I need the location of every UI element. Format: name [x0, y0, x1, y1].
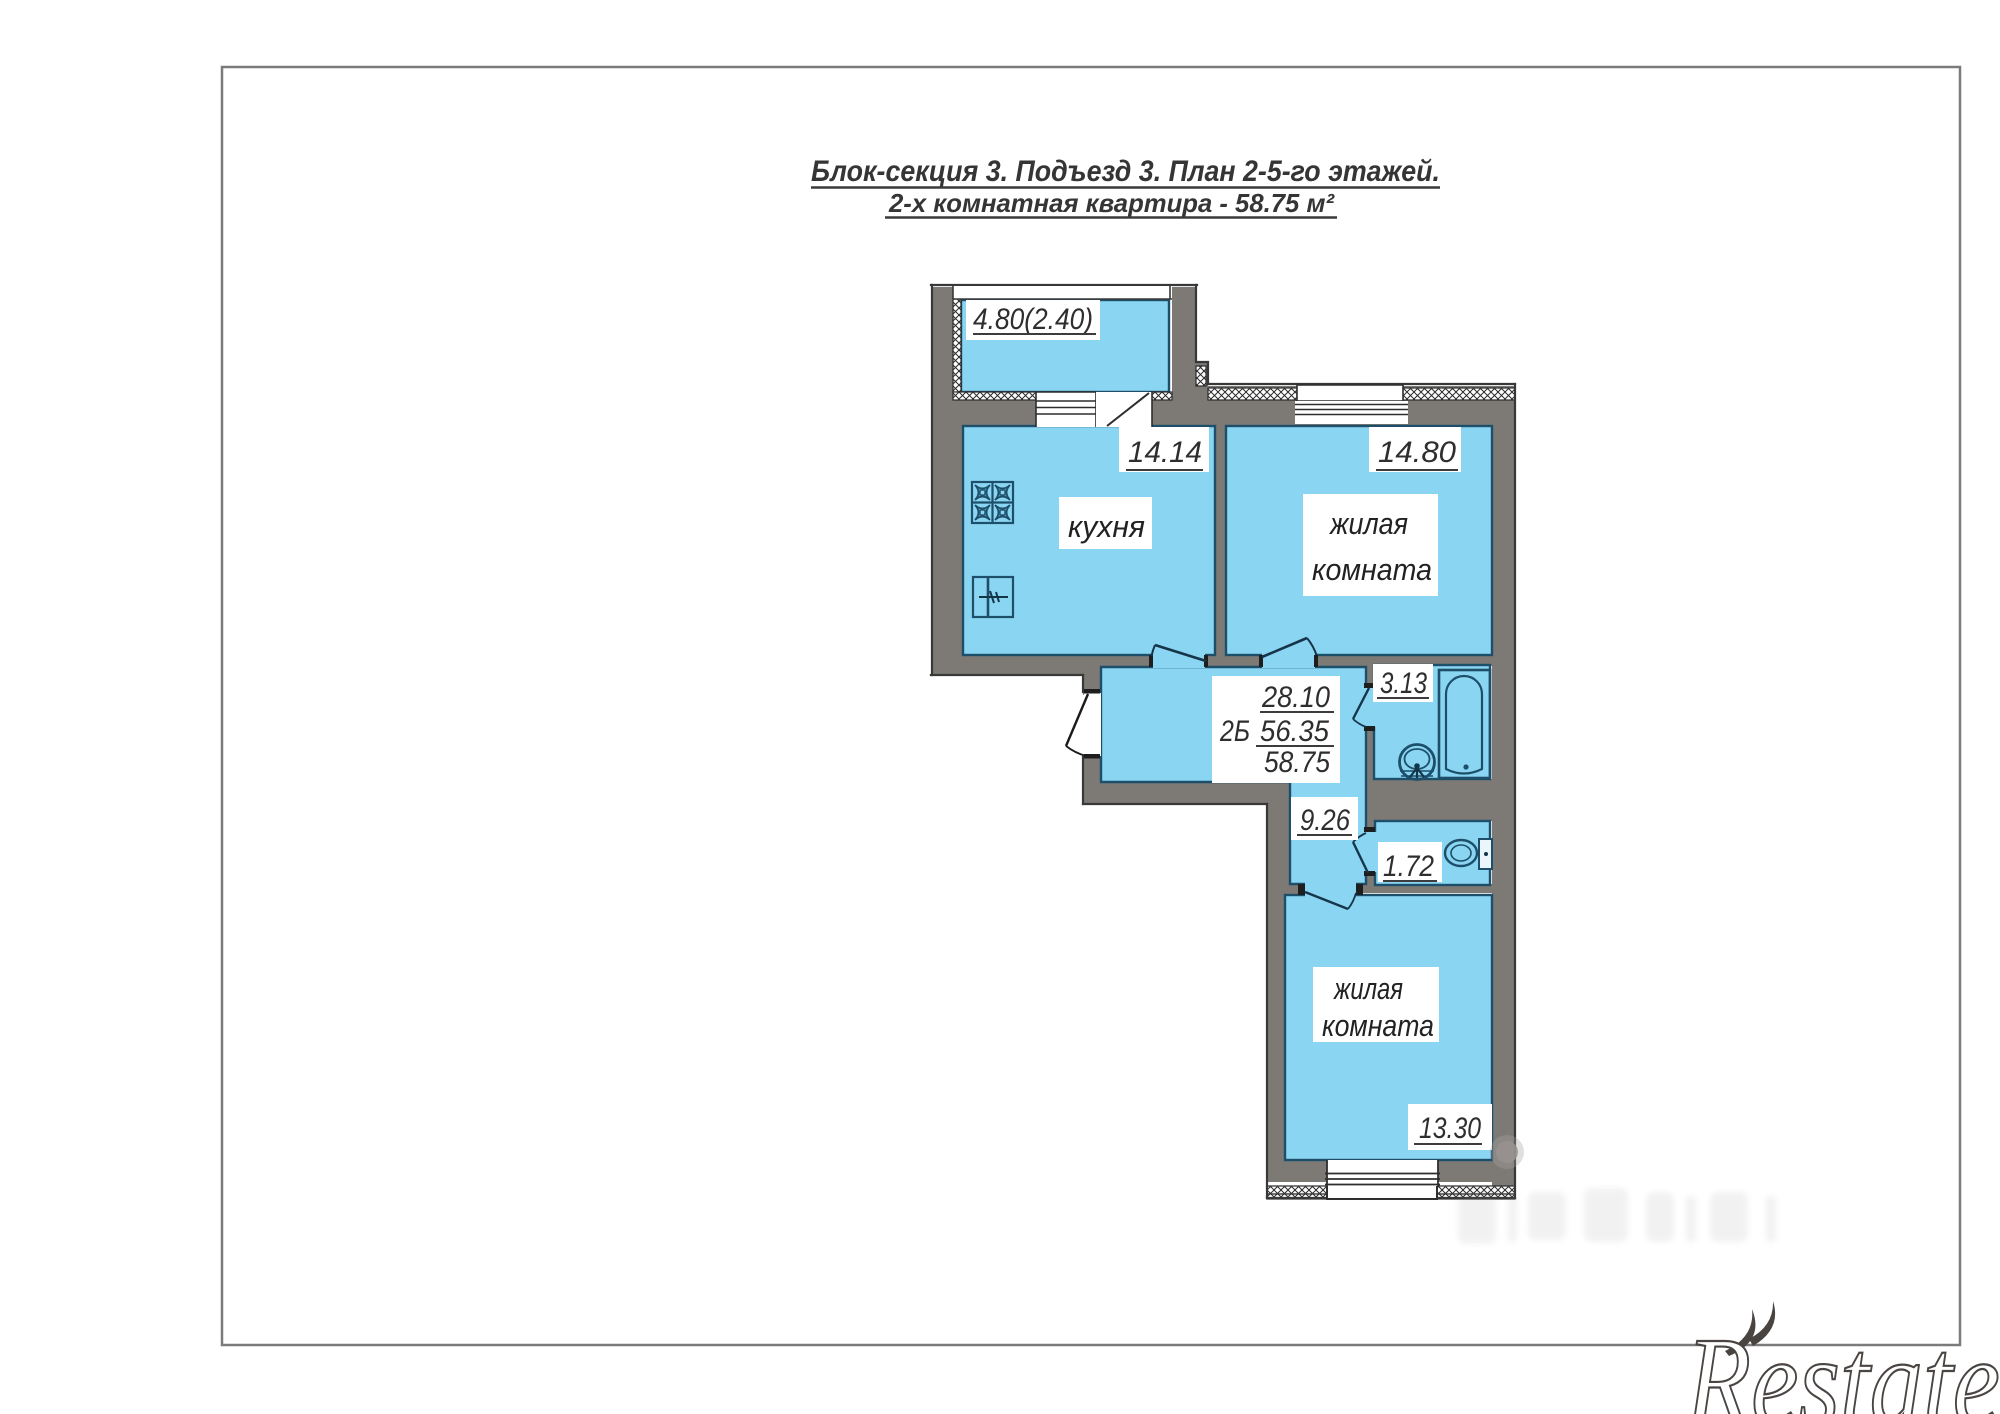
- svg-text:2Б: 2Б: [1219, 715, 1250, 748]
- svg-text:кухня: кухня: [1068, 509, 1145, 544]
- svg-text:Restate: Restate: [1685, 1313, 2000, 1414]
- svg-text:13.30: 13.30: [1419, 1112, 1481, 1145]
- svg-text:жилая: жилая: [1332, 971, 1403, 1006]
- svg-text:4.80(2.40): 4.80(2.40): [973, 303, 1093, 336]
- svg-text:жилая: жилая: [1328, 506, 1408, 541]
- svg-text:58.75: 58.75: [1264, 746, 1330, 779]
- svg-text:14.80: 14.80: [1378, 436, 1456, 469]
- svg-text:1.72: 1.72: [1383, 850, 1434, 883]
- svg-text:28.10: 28.10: [1261, 681, 1330, 714]
- svg-text:2-х комнатная квартира - 58.75: 2-х комнатная квартира - 58.75 м²: [888, 188, 1335, 218]
- svg-text:9.26: 9.26: [1300, 804, 1350, 837]
- svg-text:комната: комната: [1322, 1008, 1434, 1043]
- svg-text:3.13: 3.13: [1380, 667, 1427, 700]
- svg-text:Блок-секция 3. Подъезд 3. План: Блок-секция 3. Подъезд 3. План 2-5-го эт…: [811, 155, 1440, 188]
- svg-text:14.14: 14.14: [1128, 436, 1202, 469]
- svg-text:комната: комната: [1312, 552, 1432, 587]
- svg-text:56.35: 56.35: [1260, 715, 1329, 748]
